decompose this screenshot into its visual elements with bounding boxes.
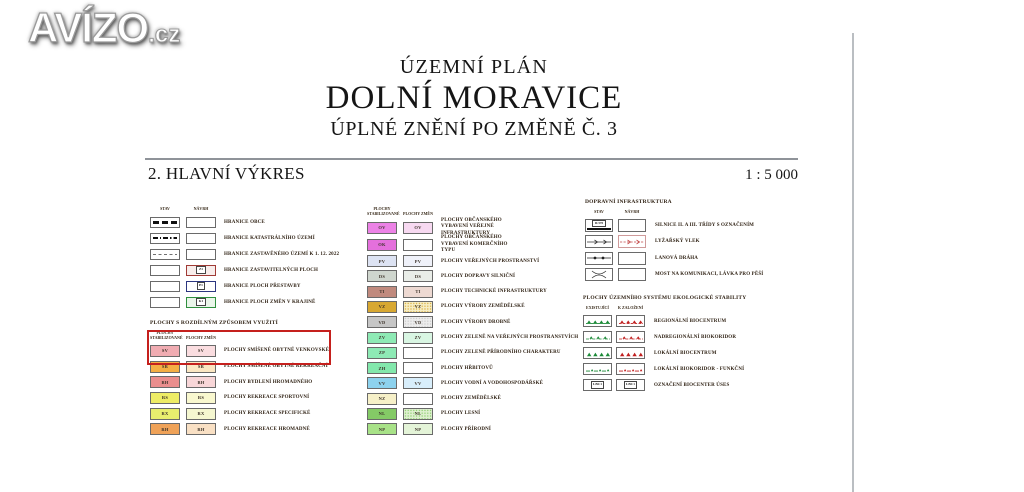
territorial-plan-legend-page: AVÍZO.cz ÚZEMNÍ PLÁN DOLNÍ MORAVICE ÚPLN… (0, 0, 1024, 492)
legend-label: PLOCHY PŘÍRODNÍ (441, 427, 491, 432)
area-code: NL (415, 411, 422, 416)
stav-swatch: RH (150, 423, 180, 435)
legend-label: LANOVÁ DRÁHA (655, 256, 698, 261)
transport-row: LANOVÁ DRÁHA (585, 250, 763, 267)
area-row: ZHPLOCHY HŘBITOVŮ (367, 360, 578, 375)
area-code: PV (415, 259, 421, 264)
uses-row: LOKÁLNÍ BIOKORIDOR - FUNKČNÍ (583, 361, 746, 377)
stav-swatch: SV (150, 345, 180, 357)
transport-legend: DOPRAVNÍ INFRASTRUKTURA STAV NÁVRH II/37… (585, 199, 763, 283)
boundaries-legend: STAV NÁVRH HRANICE OBCEHRANICE KATASTRÁL… (150, 206, 339, 310)
navrh-swatch (618, 252, 646, 265)
col-header-stabilizovane: PLOCHY STABILIZOVANÉ (150, 330, 180, 340)
header-rule (145, 158, 798, 160)
area-code: SR (162, 364, 168, 369)
area-code: VD (415, 320, 422, 325)
biocentrum-line-proposed-symbol (616, 315, 645, 327)
navrh-swatch: PV (403, 255, 433, 267)
stav-swatch: RS (150, 392, 180, 404)
legend-label: HRANICE ZASTAVITELNÝCH PLOCH (224, 268, 318, 273)
navrh-swatch: TI (403, 286, 433, 298)
area-code: RS (162, 395, 168, 400)
road-line (587, 228, 611, 231)
legend-label: PLOCHY ZEMĚDĚLSKÉ (441, 396, 501, 401)
bridge-symbol (585, 268, 613, 281)
legend-label: OZNAČENÍ BIOCENTER ÚSES (654, 383, 729, 388)
uses-row: LOKÁLNÍ BIOCENTRUM (583, 345, 746, 361)
legend-label: PLOCHY BYDLENÍ HROMADNÉHO (224, 380, 312, 385)
legend-label: PLOCHY SMÍŠENÉ OBYTNÉ REKREAČNÍ (224, 364, 328, 369)
area-code: VV (379, 381, 386, 386)
legend-label: HRANICE PLOCH PŘESTAVBY (224, 284, 301, 289)
uses-section-title: PLOCHY ÚZEMNÍHO SYSTÉMU EKOLOGICKÉ STABI… (583, 295, 746, 301)
area-code: OV (414, 225, 421, 230)
navrh-swatch: RH (186, 423, 216, 435)
uses-legend: PLOCHY ÚZEMNÍHO SYSTÉMU EKOLOGICKÉ STABI… (583, 295, 746, 393)
municipality-title: DOLNÍ MORAVICE (150, 80, 798, 117)
area-code: VD (379, 320, 386, 325)
drawing-scale: 1 : 5 000 (745, 167, 798, 184)
area-row: PVPVPLOCHY VEŘEJNÝCH PROSTRANSTVÍ (367, 253, 578, 268)
area-code: NZ (379, 396, 386, 401)
use-areas-rows: SVSVPLOCHY SMÍŠENÉ OBYTNÉ VENKOVSKÉSRSRP… (150, 343, 329, 437)
stav-swatch: BH (150, 376, 180, 388)
cable-symbol (585, 252, 613, 265)
legend-label: PLOCHY ZELENĚ NA VEŘEJNÝCH PROSTRANSTVÍC… (441, 335, 578, 340)
plan-type-title: ÚZEMNÍ PLÁN (150, 56, 798, 79)
area-row: VZVZPLOCHY VÝROBY ZEMĚDĚLSKÉ (367, 299, 578, 314)
navrh-swatch (403, 347, 433, 359)
use-areas-column-headers: PLOCHY STABILIZOVANÉ PLOCHY ZMĚN (150, 330, 329, 340)
stav-swatch: VD (367, 316, 397, 328)
area-row: SRSRPLOCHY SMÍŠENÉ OBYTNÉ REKREAČNÍ (150, 359, 329, 375)
col-header-zmen: PLOCHY ZMĚN (403, 211, 433, 216)
biocentrum-tag: LBC1 (591, 381, 605, 388)
boundary-tag: Z1 (196, 266, 205, 273)
area-code: ZV (379, 335, 386, 340)
title-block: ÚZEMNÍ PLÁN DOLNÍ MORAVICE ÚPLNÉ ZNĚNÍ P… (150, 56, 798, 141)
stav-swatch (150, 217, 180, 228)
col-header-navrh: NÁVRH (186, 206, 216, 211)
area-row: ZPPLOCHY ZELENĚ PŘÍRODNÍHO CHARAKTERU (367, 345, 578, 360)
area-code: SV (162, 348, 168, 353)
navrh-swatch: NL (403, 408, 433, 420)
col-header-existing: EXISTUJÍCÍ (583, 305, 612, 310)
stav-swatch: OV (367, 222, 397, 234)
legend-label: HRANICE KATASTRÁLNÍHO ÚZEMÍ (224, 236, 315, 241)
legend-label: PLOCHY LESNÍ (441, 411, 480, 416)
lift-proposed-symbol (618, 235, 646, 248)
brand-text: AVÍZO (28, 4, 148, 51)
triangles-proposed-symbol (616, 347, 645, 359)
legend-label: PLOCHY HŘBITOVŮ (441, 366, 493, 371)
stav-swatch: VV (367, 377, 397, 389)
area-row: VVVVPLOCHY VODNÍ A VODOHOSPODÁŘSKÉ (367, 376, 578, 391)
area-row: NZPLOCHY ZEMĚDĚLSKÉ (367, 391, 578, 406)
area-row: BHBHPLOCHY BYDLENÍ HROMADNÉHO (150, 374, 329, 390)
area-code: ZP (379, 350, 385, 355)
area-code: RX (198, 411, 205, 416)
transport-column-headers: STAV NÁVRH (585, 209, 763, 214)
col-header-proposed: K ZALOŽENÍ (616, 305, 645, 310)
dashes-line-pattern (153, 254, 177, 255)
avizo-watermark: AVÍZO.cz (28, 4, 180, 52)
stav-swatch: PV (367, 255, 397, 267)
stav-swatch (150, 265, 180, 276)
stav-swatch: ZV (367, 332, 397, 344)
triangles-existing-symbol (583, 347, 612, 359)
area-code: TI (415, 289, 420, 294)
col-header-zmen: PLOCHY ZMĚN (186, 335, 216, 340)
navrh-swatch: Z1 (186, 265, 216, 276)
area-code: ZH (379, 366, 386, 371)
area-code: VZ (415, 304, 422, 309)
road-symbol: II/370 (585, 219, 613, 232)
navrh-swatch: VZ (403, 301, 433, 313)
dash-dot-line-pattern (153, 237, 177, 239)
legend-label: PLOCHY REKREACE SPECIFICKÉ (224, 411, 311, 416)
tag-proposed-symbol: LBC1 (616, 379, 645, 391)
drawing-header: 2. HLAVNÍ VÝKRES 1 : 5 000 (148, 164, 798, 184)
stav-swatch: TI (367, 286, 397, 298)
area-row: SVSVPLOCHY SMÍŠENÉ OBYTNÉ VENKOVSKÉ (150, 343, 329, 359)
stav-swatch: ZH (367, 362, 397, 374)
drawing-name: 2. HLAVNÍ VÝKRES (148, 164, 305, 184)
area-code: RH (197, 427, 204, 432)
legend-label: PLOCHY VEŘEJNÝCH PROSTRANSTVÍ (441, 259, 539, 264)
navrh-swatch: SR (186, 361, 216, 373)
brand-tld: .cz (148, 21, 180, 48)
boundary-row: HRANICE KATASTRÁLNÍHO ÚZEMÍ (150, 230, 339, 246)
area-row: VDVDPLOCHY VÝROBY DROBNÉ (367, 315, 578, 330)
boundary-row: P1HRANICE PLOCH PŘESTAVBY (150, 278, 339, 294)
legend-label: SILNICE II. A III. TŘÍDY S OZNAČENÍM (655, 223, 754, 228)
area-code: BH (162, 380, 169, 385)
transport-row: II/370SILNICE II. A III. TŘÍDY S OZNAČEN… (585, 217, 763, 234)
uses-row: LBC1LBC1OZNAČENÍ BIOCENTER ÚSES (583, 377, 746, 393)
navrh-swatch: OV (403, 222, 433, 234)
navrh-swatch (186, 249, 216, 260)
legend-label: PLOCHY VODNÍ A VODOHOSPODÁŘSKÉ (441, 381, 543, 386)
function-areas-rows: OVOVPLOCHY OBČANSKÉHO VYBAVENÍ VEŘEJNÉ I… (367, 219, 578, 437)
stav-swatch (150, 249, 180, 260)
boundaries-column-headers: STAV NÁVRH (150, 206, 339, 211)
area-code: TI (379, 289, 384, 294)
area-row: DSDSPLOCHY DOPRAVY SILNIČNÍ (367, 269, 578, 284)
navrh-swatch: SV (186, 345, 216, 357)
area-code: RH (161, 427, 168, 432)
area-code: NL (379, 411, 386, 416)
area-code: RX (162, 411, 169, 416)
navrh-swatch: NP (403, 423, 433, 435)
col-header-stabilizovane: PLOCHY STABILIZOVANÉ (367, 206, 397, 216)
biokoridor-dashdot-proposed-symbol (616, 331, 645, 343)
stav-swatch (150, 281, 180, 292)
area-code: DS (379, 274, 385, 279)
stav-swatch: NL (367, 408, 397, 420)
amendment-title: ÚPLNÉ ZNĚNÍ PO ZMĚNĚ Č. 3 (150, 118, 798, 141)
legend-label: LOKÁLNÍ BIOCENTRUM (654, 351, 717, 356)
lift-symbol (585, 235, 613, 248)
area-row: RSRSPLOCHY REKREACE SPORTOVNÍ (150, 390, 329, 406)
biocentrum-line-existing-symbol (583, 315, 612, 327)
area-row: RHRHPLOCHY REKREACE HROMADNÉ (150, 421, 329, 437)
area-row: OVOVPLOCHY OBČANSKÉHO VYBAVENÍ VEŘEJNÉ I… (367, 219, 578, 236)
area-row: OKPLOCHY OBČANSKÉHO VYBAVENÍ KOMERČNÍHO … (367, 236, 578, 253)
area-row: NPNPPLOCHY PŘÍRODNÍ (367, 422, 578, 437)
navrh-swatch (186, 233, 216, 244)
navrh-swatch: VV (403, 377, 433, 389)
small-triangles-proposed-symbol (616, 363, 645, 375)
legend-label: PLOCHY REKREACE HROMADNÉ (224, 427, 310, 432)
navrh-swatch: DS (403, 270, 433, 282)
legend-label: HRANICE OBCE (224, 220, 265, 225)
stav-swatch (150, 297, 180, 308)
area-code: SV (198, 348, 204, 353)
navrh-swatch (403, 362, 433, 374)
transport-section-title: DOPRAVNÍ INFRASTRUKTURA (585, 199, 763, 205)
navrh-swatch: RX (186, 408, 216, 420)
area-code: BH (198, 380, 205, 385)
navrh-swatch (403, 239, 433, 251)
boundary-row: HRANICE ZASTAVĚNÉHO ÚZEMÍ K 1. 12. 2022 (150, 246, 339, 262)
legend-label: HRANICE ZASTAVĚNÉHO ÚZEMÍ K 1. 12. 2022 (224, 252, 339, 257)
transport-rows: II/370SILNICE II. A III. TŘÍDY S OZNAČEN… (585, 217, 763, 283)
legend-label: NADREGIONÁLNÍ BIOKORIDOR (654, 335, 736, 340)
uses-column-headers: EXISTUJÍCÍ K ZALOŽENÍ (583, 305, 746, 310)
uses-row: REGIONÁLNÍ BIOCENTRUM (583, 313, 746, 329)
navrh-swatch: P1 (186, 281, 216, 292)
boundary-row: HRANICE OBCE (150, 214, 339, 230)
area-code: SR (198, 364, 204, 369)
stav-swatch: DS (367, 270, 397, 282)
legend-label: LOKÁLNÍ BIOKORIDOR - FUNKČNÍ (654, 367, 744, 372)
boundary-tag: P1 (197, 282, 206, 289)
legend-label: PLOCHY REKREACE SPORTOVNÍ (224, 395, 309, 400)
stav-swatch: OK (367, 239, 397, 251)
area-code: VZ (379, 304, 386, 309)
stav-swatch: VZ (367, 301, 397, 313)
transport-row: LYŽAŘSKÝ VLEK (585, 234, 763, 251)
legend-label: PLOCHY SMÍŠENÉ OBYTNÉ VENKOVSKÉ (224, 348, 329, 353)
area-code: PV (379, 259, 385, 264)
legend-label: LYŽAŘSKÝ VLEK (655, 239, 700, 244)
navrh-swatch: ZV (403, 332, 433, 344)
area-code: ZV (415, 335, 422, 340)
stav-swatch: ZP (367, 347, 397, 359)
function-areas-legend: PLOCHY STABILIZOVANÉ PLOCHY ZMĚN OVOVPLO… (367, 206, 578, 437)
boundary-tag: K1 (196, 298, 205, 305)
navrh-swatch: VD (403, 316, 433, 328)
legend-label: PLOCHY ZELENĚ PŘÍRODNÍHO CHARAKTERU (441, 350, 561, 355)
legend-label: PLOCHY OBČANSKÉHO VYBAVENÍ KOMERČNÍHO TY… (441, 235, 519, 255)
col-header-stav: STAV (585, 209, 613, 214)
navrh-swatch: RS (186, 392, 216, 404)
area-code: OV (378, 225, 385, 230)
area-code: NP (379, 427, 385, 432)
thick-dashes-line-pattern (153, 221, 177, 224)
legend-label: PLOCHY DOPRAVY SILNIČNÍ (441, 274, 515, 279)
stav-swatch (150, 233, 180, 244)
tag-existing-symbol: LBC1 (583, 379, 612, 391)
legend-label: HRANICE PLOCH ZMĚN V KRAJINĚ (224, 300, 316, 305)
biocentrum-tag: LBC1 (624, 381, 638, 388)
legend-label: PLOCHY VÝROBY DROBNÉ (441, 320, 511, 325)
small-triangles-existing-symbol (583, 363, 612, 375)
area-code: DS (415, 274, 421, 279)
biokoridor-dashdot-existing-symbol (583, 331, 612, 343)
area-code: NP (415, 427, 421, 432)
uses-row: NADREGIONÁLNÍ BIOKORIDOR (583, 329, 746, 345)
use-areas-legend: PLOCHY S ROZDÍLNÝM ZPŮSOBEM VYUŽITÍ PLOC… (150, 320, 329, 437)
area-code: VV (415, 381, 422, 386)
boundary-row: Z1HRANICE ZASTAVITELNÝCH PLOCH (150, 262, 339, 278)
uses-rows: REGIONÁLNÍ BIOCENTRUMNADREGIONÁLNÍ BIOKO… (583, 313, 746, 393)
legend-label: PLOCHY VÝROBY ZEMĚDĚLSKÉ (441, 304, 525, 309)
right-divider-line (852, 33, 854, 492)
area-row: ZVZVPLOCHY ZELENĚ NA VEŘEJNÝCH PROSTRANS… (367, 330, 578, 345)
area-row: NLNLPLOCHY LESNÍ (367, 406, 578, 421)
area-code: OK (378, 242, 385, 247)
area-row: TITIPLOCHY TECHNICKÉ INFRASTRUKTURY (367, 284, 578, 299)
navrh-swatch (403, 393, 433, 405)
use-areas-section-title: PLOCHY S ROZDÍLNÝM ZPŮSOBEM VYUŽITÍ (150, 320, 329, 326)
road-number-tag: II/370 (592, 220, 605, 227)
legend-label: MOST NA KOMUNIKACI, LÁVKA PRO PĚŠÍ (655, 272, 763, 277)
area-code: RS (198, 395, 204, 400)
navrh-swatch: K1 (186, 297, 216, 308)
navrh-swatch: BH (186, 376, 216, 388)
col-header-navrh: NÁVRH (618, 209, 646, 214)
stav-swatch: NP (367, 423, 397, 435)
navrh-swatch (186, 217, 216, 228)
legend-label: PLOCHY TECHNICKÉ INFRASTRUKTURY (441, 289, 547, 294)
col-header-stav: STAV (150, 206, 180, 211)
stav-swatch: RX (150, 408, 180, 420)
boundary-row: K1HRANICE PLOCH ZMĚN V KRAJINĚ (150, 294, 339, 310)
road-sign: II/370 (587, 220, 611, 230)
navrh-swatch (618, 219, 646, 232)
navrh-swatch (618, 268, 646, 281)
function-areas-column-headers: PLOCHY STABILIZOVANÉ PLOCHY ZMĚN (367, 206, 578, 216)
stav-swatch: NZ (367, 393, 397, 405)
transport-row: MOST NA KOMUNIKACI, LÁVKA PRO PĚŠÍ (585, 267, 763, 284)
boundaries-rows: HRANICE OBCEHRANICE KATASTRÁLNÍHO ÚZEMÍH… (150, 214, 339, 310)
stav-swatch: SR (150, 361, 180, 373)
legend-label: REGIONÁLNÍ BIOCENTRUM (654, 319, 726, 324)
area-row: RXRXPLOCHY REKREACE SPECIFICKÉ (150, 406, 329, 422)
